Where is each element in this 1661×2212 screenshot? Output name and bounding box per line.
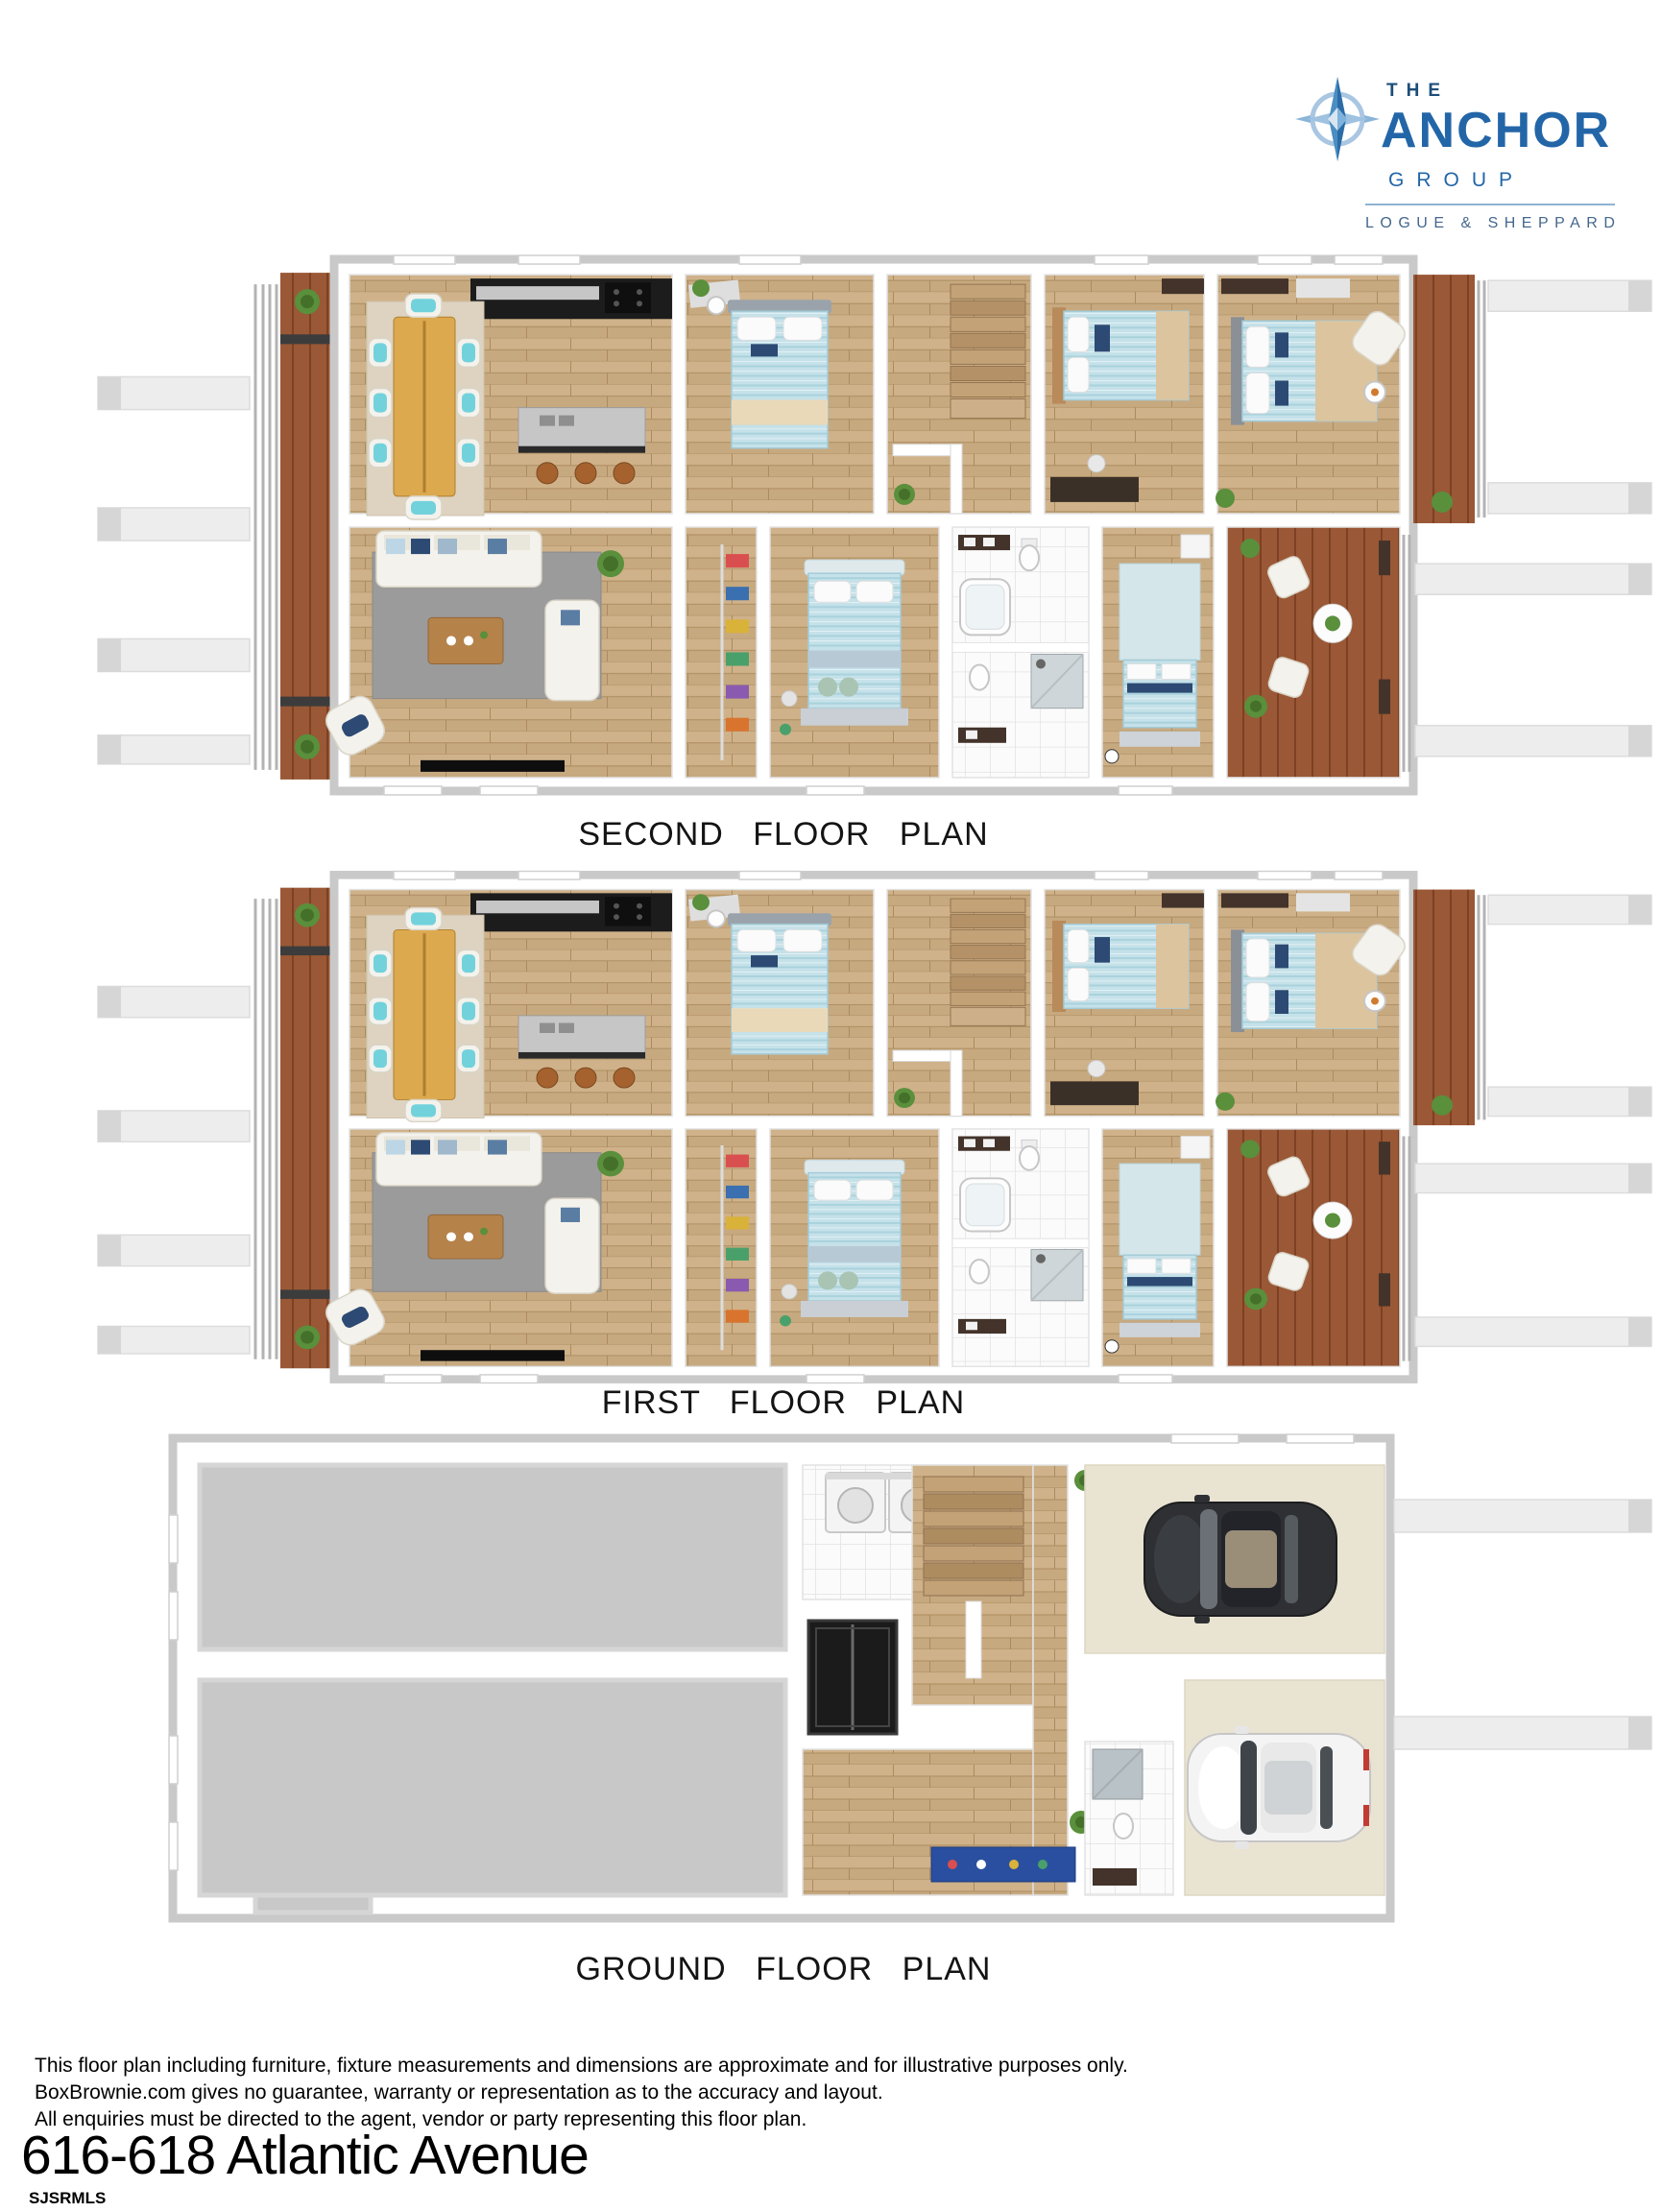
- disclaimer-line: BoxBrownie.com gives no guarantee, warra…: [35, 2080, 1128, 2106]
- ground-floor-plan-label: GROUND FLOOR PLAN: [0, 1951, 1567, 1988]
- logo-divider: [1365, 204, 1615, 205]
- first-floor-plan-label: FIRST FLOOR PLAN: [0, 1384, 1567, 1422]
- disclaimer-text: This floor plan including furniture, fix…: [35, 2053, 1128, 2133]
- mls-label: SJSRMLS: [29, 2189, 106, 2208]
- second-floor-plan-label: SECOND FLOOR PLAN: [0, 816, 1567, 854]
- logo-word-anchor: ANCHOR: [1381, 102, 1611, 159]
- second-floor-plan-image: [67, 246, 1661, 805]
- logo-word-group: GROUP: [1388, 169, 1525, 192]
- address-title: 616-618 Atlantic Avenue: [21, 2124, 589, 2187]
- disclaimer-line: This floor plan including furniture, fix…: [35, 2053, 1128, 2080]
- compass-star-icon: [1292, 73, 1383, 165]
- logo-word-the: THE: [1386, 81, 1449, 102]
- first-floor-plan-image: [67, 862, 1661, 1392]
- ground-floor-plan-image: [67, 1419, 1661, 1937]
- logo-tagline: LOGUE & SHEPPARD: [1365, 215, 1621, 232]
